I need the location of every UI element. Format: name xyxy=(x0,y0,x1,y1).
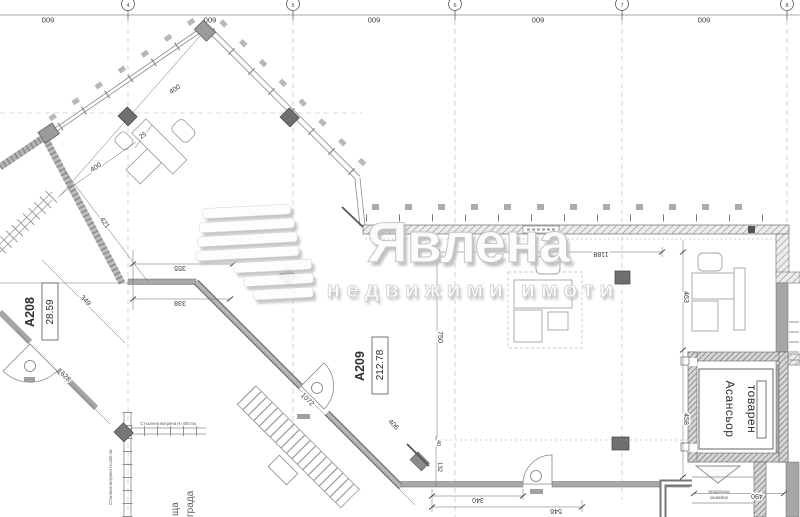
glass-showcase-label-horizontal: Стъклена витрина Н=400 см xyxy=(140,421,196,426)
dim-1188: 1188 xyxy=(593,250,608,257)
floor-plan-drawing: 600 600 600 600 600 4 5 6 7 8 xyxy=(0,0,800,517)
hall-diagonal-wall xyxy=(196,282,401,487)
dim-490: 490 xyxy=(751,492,763,499)
hatched-wall-a208-east xyxy=(44,136,122,283)
watermark-tagline: недвижими имоти xyxy=(327,277,620,302)
dim-600-4: 600 xyxy=(532,16,545,25)
dim-600-3: 600 xyxy=(368,16,381,25)
column-grid-b xyxy=(280,108,299,127)
dim-458: 458 xyxy=(682,413,689,425)
room-a209-area: 212.78 xyxy=(375,349,386,380)
dim-463: 463 xyxy=(682,291,689,303)
glass-wall-connector xyxy=(355,178,365,226)
street-label-partial-2: града xyxy=(185,490,196,517)
street-label-partial-1: ща xyxy=(170,502,181,516)
axis-bubble-label: 4 xyxy=(126,3,129,9)
room-tag-a209: A209 212.78 xyxy=(353,337,388,394)
dim-40: 40 xyxy=(435,440,441,446)
room-a208-number: A208 xyxy=(23,297,37,327)
dim-600-5: 600 xyxy=(698,16,711,25)
glass-wall-right-diagonal xyxy=(209,21,368,180)
conveyor-entry: вход/изход конвейер xyxy=(696,466,740,500)
dim-421: 421 xyxy=(98,216,111,230)
dim-340: 340 xyxy=(472,496,484,503)
elevator-label-line2: товарен xyxy=(745,385,759,433)
entrance-stairs-band xyxy=(237,386,360,508)
glass-showcase-label-vertical: Стъклена витрина Н=400 см xyxy=(108,449,113,505)
dim-546: 546 xyxy=(550,507,562,514)
door-a209 xyxy=(297,363,334,419)
watermark-logo-icon xyxy=(194,203,318,307)
dim-750: 750 xyxy=(436,331,443,343)
dim-132: 132 xyxy=(436,462,442,473)
office-a208-furniture xyxy=(105,95,205,195)
watermark-brand: Явлена xyxy=(367,211,572,275)
dim-349: 349 xyxy=(78,294,91,307)
conveyor-label-line2: конвейер xyxy=(710,495,729,500)
room-a208-area: 28.59 xyxy=(45,299,56,324)
door-bottom xyxy=(523,455,552,494)
axis-bubble-label: 8 xyxy=(785,3,788,9)
column-grid-a xyxy=(118,107,137,126)
top-dimension-line: 600 600 600 600 600 xyxy=(0,10,800,25)
dim-355: 355 xyxy=(174,264,186,271)
dim-400-upper: 400 xyxy=(168,84,182,96)
mid-wall xyxy=(128,279,196,285)
hall-desk-right xyxy=(692,253,745,331)
glass-wall-horizontal-sw xyxy=(131,428,206,434)
elevator-shaft: Асансьор товарен xyxy=(681,352,788,462)
axis-bubble-label: 7 xyxy=(620,3,623,9)
small-door-detail xyxy=(407,444,429,471)
axis-bubble-label: 5 xyxy=(291,3,294,9)
column-hall-lower xyxy=(612,437,629,450)
dim-338: 338 xyxy=(174,299,186,306)
dim-406: 406 xyxy=(386,418,399,431)
dim-600-1: 600 xyxy=(42,16,55,25)
grid-axis-bubbles: 4 5 6 7 8 xyxy=(122,0,794,11)
axis-bubble-label: 6 xyxy=(453,3,456,9)
elevator-label-line1: Асансьор xyxy=(723,381,737,438)
storefront-band-top-left xyxy=(0,192,52,252)
room-a209-number: A209 xyxy=(353,351,367,381)
dim-400-lower: 400 xyxy=(89,162,103,174)
room-tag-a208: A208 28.59 xyxy=(23,283,58,340)
watermark: Явлена Явлена недвижими имоти недвижими … xyxy=(194,203,622,307)
floor-plan-canvas: 600 600 600 600 600 4 5 6 7 8 xyxy=(0,0,800,517)
